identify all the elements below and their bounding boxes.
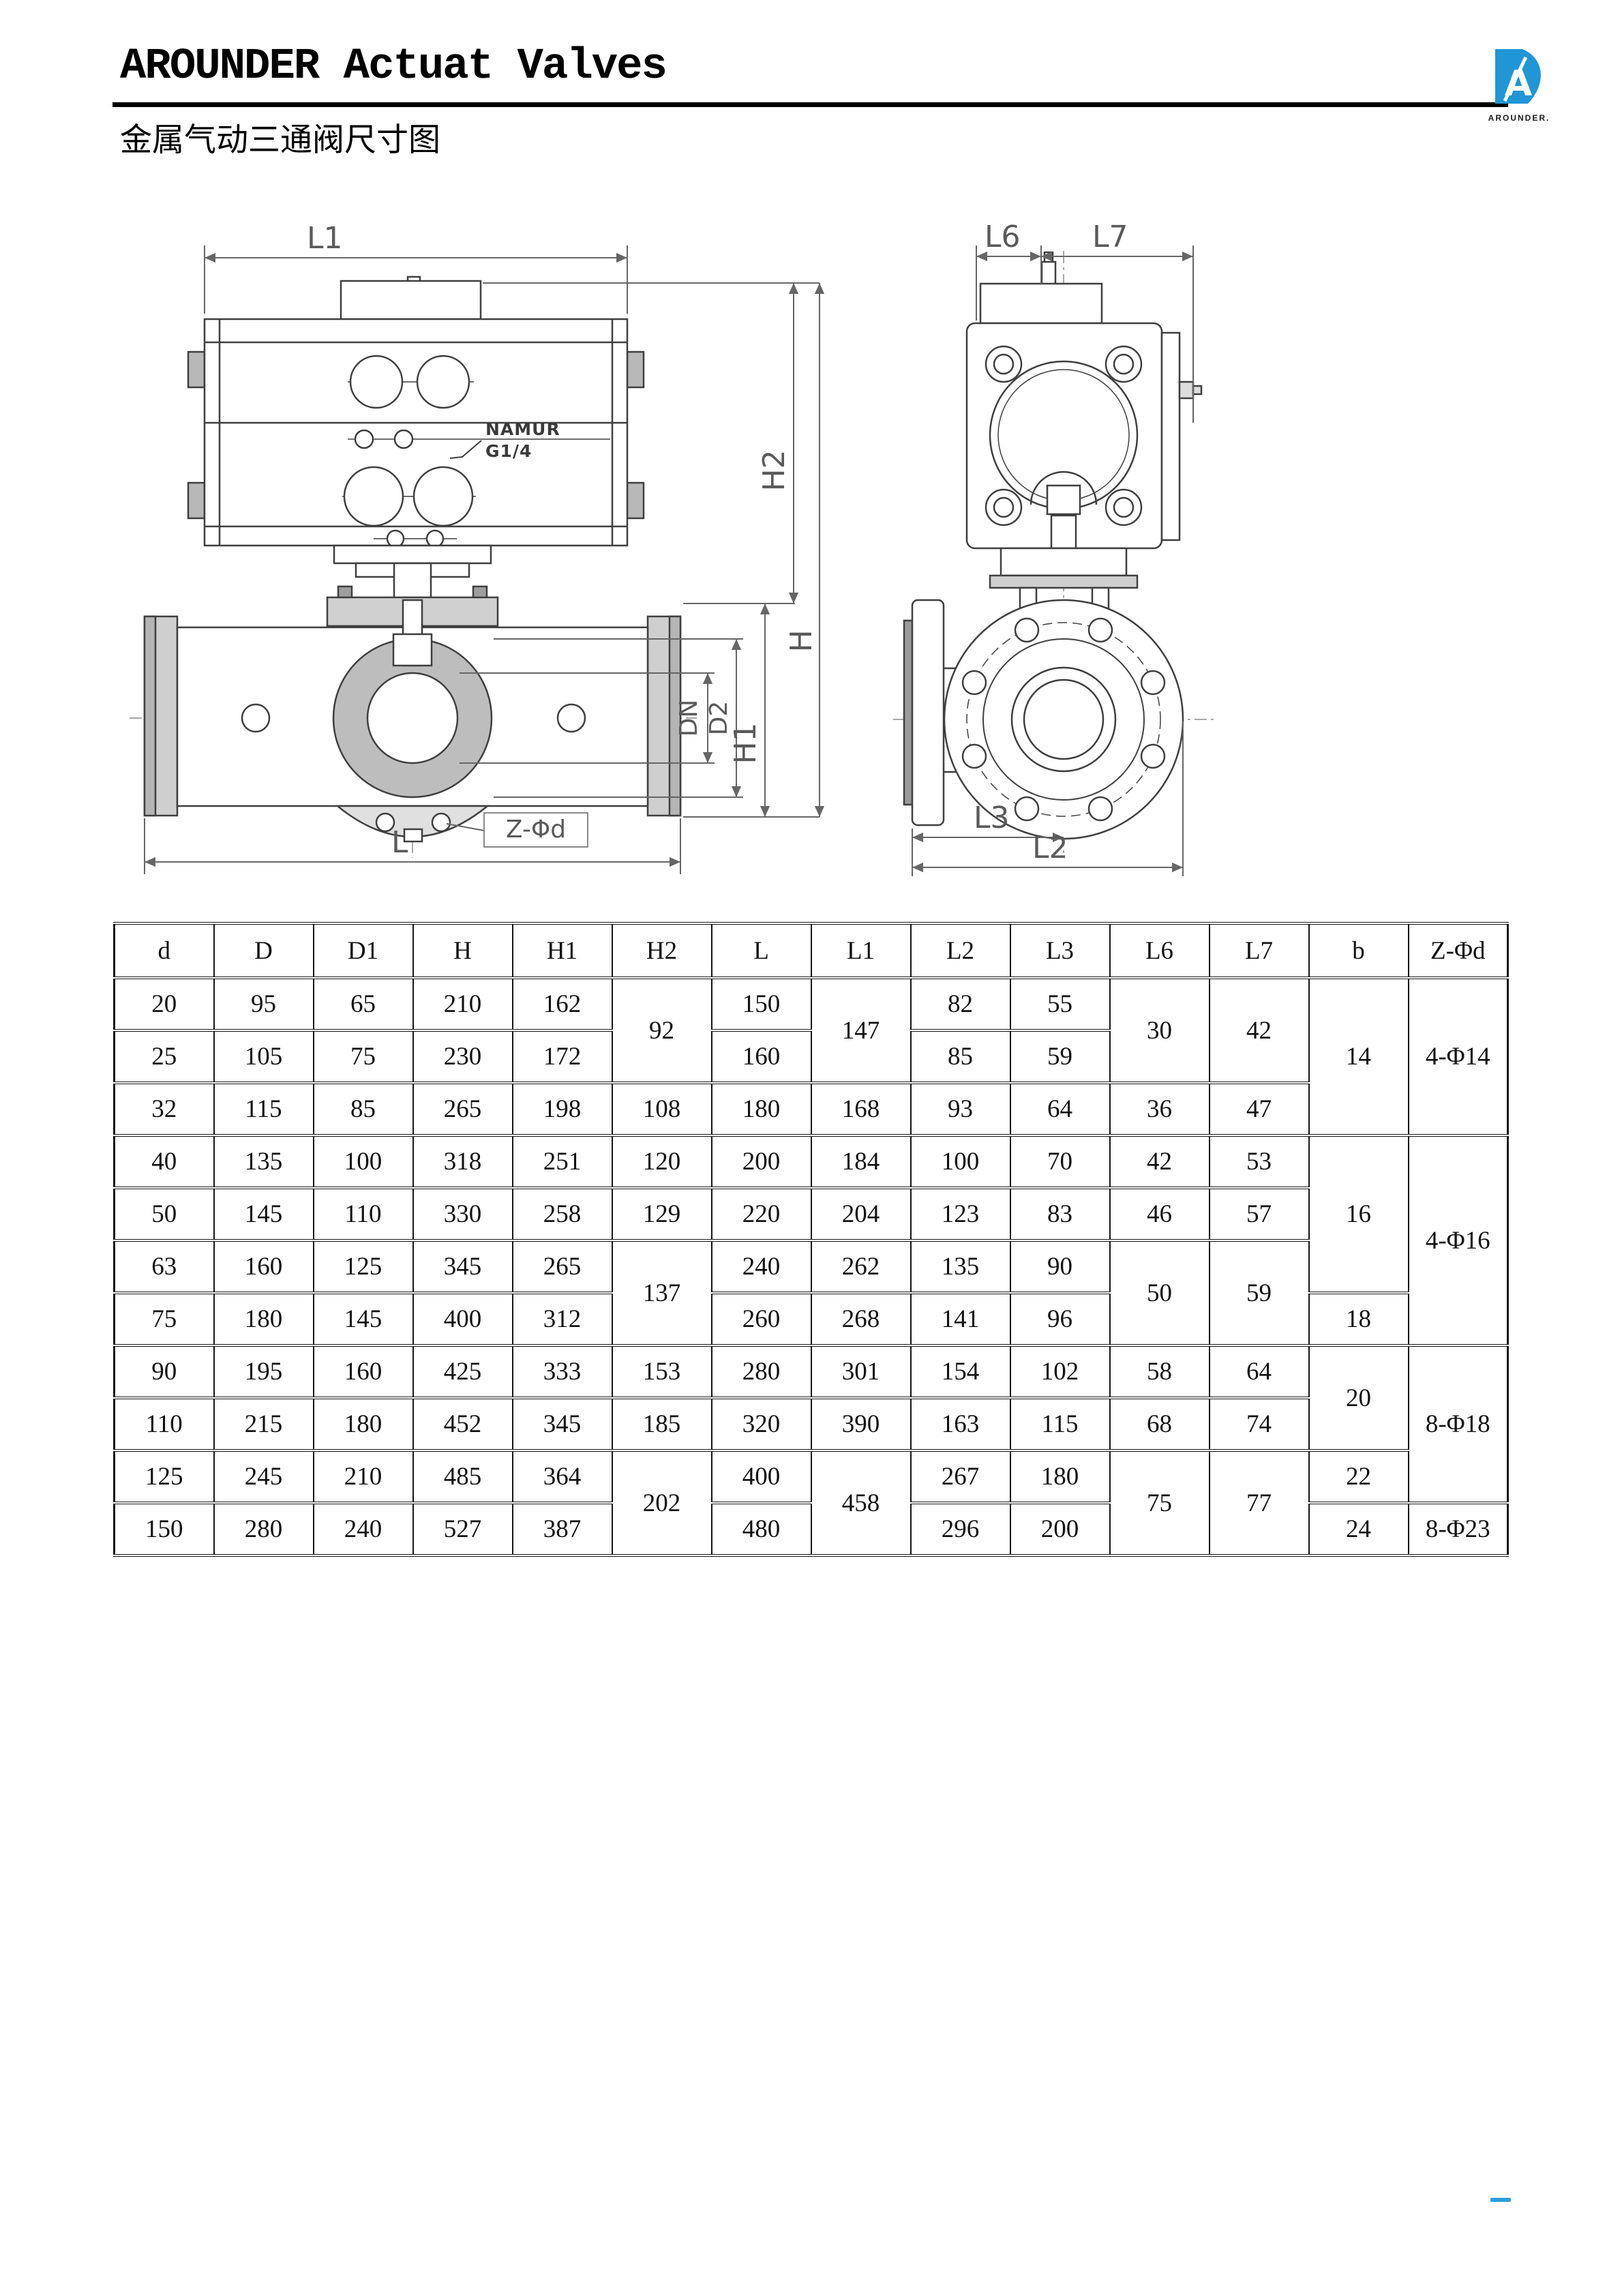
table-cell: 262 — [811, 1240, 911, 1293]
front-view-drawing: NAMUR G1/4 — [102, 218, 825, 890]
table-cell: 318 — [413, 1135, 513, 1188]
table-cell: 320 — [712, 1398, 811, 1450]
table-cell: 14 — [1309, 978, 1409, 1135]
table-cell: 204 — [811, 1188, 911, 1240]
table-cell: 387 — [513, 1503, 612, 1555]
table-cell: 145 — [214, 1188, 314, 1240]
table-cell: 120 — [612, 1135, 712, 1188]
table-row: 50145110330258129220204123834657 — [115, 1188, 1508, 1240]
table-cell: 115 — [1010, 1398, 1110, 1450]
table-cell: 75 — [115, 1293, 214, 1345]
table-cell: 47 — [1210, 1083, 1309, 1135]
table-cell: 74 — [1210, 1398, 1309, 1450]
title-rule — [112, 102, 1508, 107]
table-row: 321158526519810818016893643647 — [115, 1083, 1508, 1135]
namur-label-line1: NAMUR — [485, 419, 560, 439]
table-cell: 105 — [214, 1030, 314, 1083]
table-cell: 180 — [314, 1398, 413, 1450]
table-cell: 22 — [1309, 1450, 1409, 1503]
page-subtitle: 金属气动三通阀尺寸图 — [120, 113, 440, 160]
table-cell: 83 — [1010, 1188, 1110, 1240]
table-cell: 245 — [214, 1450, 314, 1503]
logo-brand-text: AROUNDER. — [1484, 113, 1555, 123]
table-cell: 25 — [115, 1030, 214, 1083]
table-cell: 92 — [612, 978, 712, 1083]
column-header: L — [712, 923, 811, 978]
table-cell: 75 — [1110, 1450, 1210, 1555]
table-cell: 210 — [314, 1450, 413, 1503]
valve-side — [904, 600, 1183, 839]
table-cell: 135 — [214, 1135, 314, 1188]
table-cell: 150 — [115, 1503, 214, 1555]
table-cell: 153 — [612, 1345, 712, 1398]
table-cell: 30 — [1110, 978, 1210, 1083]
table-cell: 100 — [314, 1135, 413, 1188]
table-cell: 137 — [612, 1240, 712, 1345]
actuator-front — [188, 277, 644, 547]
column-header: L1 — [811, 923, 911, 978]
table-cell: 18 — [1309, 1293, 1409, 1345]
table-cell: 258 — [513, 1188, 612, 1240]
table-row: 63160125345265137240262135905059 — [115, 1240, 1508, 1293]
table-cell: 180 — [712, 1083, 811, 1135]
table-cell: 452 — [413, 1398, 513, 1450]
table-cell: 68 — [1110, 1398, 1210, 1450]
table-cell: 59 — [1010, 1030, 1110, 1083]
table-cell: 77 — [1210, 1450, 1309, 1555]
table-cell: 240 — [314, 1503, 413, 1555]
logo-monogram: A — [1505, 63, 1532, 104]
table-cell: 96 — [1010, 1293, 1110, 1345]
table-cell: 280 — [712, 1345, 811, 1398]
table-row: 40135100318251120200184100704253164-Φ16 — [115, 1135, 1508, 1188]
table-cell: 20 — [115, 978, 214, 1030]
table-cell: 260 — [712, 1293, 811, 1345]
column-header: L2 — [911, 923, 1010, 978]
table-row: 2095652101629215014782553042144-Φ14 — [115, 978, 1508, 1030]
table-cell: 102 — [1010, 1345, 1110, 1398]
table-cell: 195 — [214, 1345, 314, 1398]
table-cell: 85 — [314, 1083, 413, 1135]
table-cell: 95 — [214, 978, 314, 1030]
table-cell: 400 — [413, 1293, 513, 1345]
table-cell: 180 — [1010, 1450, 1110, 1503]
table-cell: 301 — [811, 1345, 911, 1398]
table-cell: 40 — [115, 1135, 214, 1188]
table-cell: 20 — [1309, 1345, 1409, 1450]
table-cell: 527 — [413, 1503, 513, 1555]
column-header: b — [1309, 923, 1409, 978]
namur-label-line2: G1/4 — [485, 441, 532, 461]
table-cell: 110 — [115, 1398, 214, 1450]
table-cell: 163 — [911, 1398, 1010, 1450]
table-cell: 180 — [214, 1293, 314, 1345]
table-cell: 46 — [1110, 1188, 1210, 1240]
table-cell: 115 — [214, 1083, 314, 1135]
table-cell: 57 — [1210, 1188, 1309, 1240]
table-cell: 268 — [811, 1293, 911, 1345]
table-cell: 154 — [911, 1345, 1010, 1398]
table-cell: 145 — [314, 1293, 413, 1345]
table-cell: 4-Φ16 — [1409, 1135, 1508, 1345]
table-cell: 70 — [1010, 1135, 1110, 1188]
dim-label-z-phi-d: Z-Φd — [506, 816, 566, 844]
table-cell: 125 — [314, 1240, 413, 1293]
table-cell: 93 — [911, 1083, 1010, 1135]
dim-label-l: L — [391, 825, 408, 860]
table-cell: 185 — [612, 1398, 712, 1450]
table-cell: 82 — [911, 978, 1010, 1030]
dim-label-h: H — [784, 629, 819, 652]
page-title: AROUNDER Actuat Valves — [120, 42, 666, 91]
ball-bore — [367, 673, 457, 763]
column-header: H2 — [612, 923, 712, 978]
table-cell: 75 — [314, 1030, 413, 1083]
table-cell: 63 — [115, 1240, 214, 1293]
table-cell: 251 — [513, 1135, 612, 1188]
table-cell: 125 — [115, 1450, 214, 1503]
table-cell: 458 — [811, 1450, 911, 1555]
column-header: L3 — [1010, 923, 1110, 978]
table-cell: 160 — [314, 1345, 413, 1398]
table-cell: 32 — [115, 1083, 214, 1135]
side-view-drawing: L6 L7 L3 L2 — [873, 218, 1309, 890]
table-cell: 108 — [612, 1083, 712, 1135]
dimension-table: dDD1HH1H2LL1L2L3L6L7bZ-Φd 20956521016292… — [113, 922, 1509, 1557]
table-cell: 200 — [1010, 1503, 1110, 1555]
table-cell: 110 — [314, 1188, 413, 1240]
table-cell: 390 — [811, 1398, 911, 1450]
table-cell: 55 — [1010, 978, 1110, 1030]
table-cell: 90 — [1010, 1240, 1110, 1293]
table-cell: 53 — [1210, 1135, 1309, 1188]
table-cell: 4-Φ14 — [1409, 978, 1508, 1135]
table-cell: 296 — [911, 1503, 1010, 1555]
column-header: D — [214, 923, 314, 978]
column-header: Z-Φd — [1409, 923, 1508, 978]
table-cell: 333 — [513, 1345, 612, 1398]
table-cell: 42 — [1110, 1135, 1210, 1188]
table-cell: 210 — [413, 978, 513, 1030]
table-cell: 240 — [712, 1240, 811, 1293]
table-cell: 64 — [1210, 1345, 1309, 1398]
column-header: D1 — [314, 923, 413, 978]
page-corner-mark — [1490, 2198, 1511, 2202]
datasheet-page: { "header": { "title": "AROUNDER Actuat … — [0, 0, 1622, 2296]
table-cell: 85 — [911, 1030, 1010, 1083]
table-cell: 200 — [712, 1135, 811, 1188]
logo-mark-icon: A — [1488, 45, 1550, 109]
table-cell: 90 — [115, 1345, 214, 1398]
table-cell: 425 — [413, 1345, 513, 1398]
table-cell: 8-Φ23 — [1409, 1503, 1508, 1555]
table-cell: 172 — [513, 1030, 612, 1083]
actuator-side — [967, 252, 1201, 608]
table-cell: 100 — [911, 1135, 1010, 1188]
table-cell: 150 — [712, 978, 811, 1030]
table-cell: 312 — [513, 1293, 612, 1345]
table-cell: 230 — [413, 1030, 513, 1083]
table-cell: 58 — [1110, 1345, 1210, 1398]
table-cell: 330 — [413, 1188, 513, 1240]
table-cell: 16 — [1309, 1135, 1409, 1293]
dim-label-l7: L7 — [1092, 220, 1128, 254]
table-cell: 160 — [712, 1030, 811, 1083]
dim-label-h1: H1 — [728, 722, 763, 764]
table-cell: 267 — [911, 1450, 1010, 1503]
table-cell: 135 — [911, 1240, 1010, 1293]
table-cell: 280 — [214, 1503, 314, 1555]
table-cell: 345 — [413, 1240, 513, 1293]
table-cell: 485 — [413, 1450, 513, 1503]
table-cell: 36 — [1110, 1083, 1210, 1135]
table-cell: 129 — [612, 1188, 712, 1240]
table-cell: 265 — [513, 1240, 612, 1293]
table-cell: 215 — [214, 1398, 314, 1450]
table-cell: 50 — [1110, 1240, 1210, 1345]
table-cell: 345 — [513, 1398, 612, 1450]
table-cell: 168 — [811, 1083, 911, 1135]
table-cell: 123 — [911, 1188, 1010, 1240]
dim-label-l1: L1 — [307, 221, 343, 256]
table-cell: 147 — [811, 978, 911, 1083]
dim-label-h2: H2 — [757, 449, 792, 491]
column-header: H1 — [513, 923, 612, 978]
table-cell: 184 — [811, 1135, 911, 1188]
table-cell: 160 — [214, 1240, 314, 1293]
table-cell: 162 — [513, 978, 612, 1030]
company-logo: A AROUNDER. — [1484, 45, 1555, 123]
table-cell: 8-Φ18 — [1409, 1345, 1508, 1503]
table-cell: 64 — [1010, 1083, 1110, 1135]
dim-label-l2: L2 — [1032, 831, 1068, 865]
dim-label-l3: L3 — [974, 801, 1010, 835]
table-cell: 202 — [612, 1450, 712, 1555]
table-row: 125245210485364202400458267180757722 — [115, 1450, 1508, 1503]
table-cell: 42 — [1210, 978, 1309, 1083]
column-header: H — [413, 923, 513, 978]
table-cell: 198 — [513, 1083, 612, 1135]
table-cell: 141 — [911, 1293, 1010, 1345]
dimension-table-header: dDD1HH1H2LL1L2L3L6L7bZ-Φd — [115, 923, 1508, 978]
table-cell: 24 — [1309, 1503, 1409, 1555]
column-header: d — [115, 923, 214, 978]
column-header: L7 — [1210, 923, 1309, 978]
table-cell: 59 — [1210, 1240, 1309, 1345]
table-cell: 50 — [115, 1188, 214, 1240]
dim-label-dn: DN — [675, 700, 703, 737]
table-row: 1102151804523451853203901631156874 — [115, 1398, 1508, 1450]
table-row: 901951604253331532803011541025864208-Φ18 — [115, 1345, 1508, 1398]
table-cell: 400 — [712, 1450, 811, 1503]
table-cell: 364 — [513, 1450, 612, 1503]
table-cell: 220 — [712, 1188, 811, 1240]
column-header: L6 — [1110, 923, 1210, 978]
table-cell: 265 — [413, 1083, 513, 1135]
table-cell: 65 — [314, 978, 413, 1030]
dim-label-l6: L6 — [985, 220, 1021, 254]
table-cell: 480 — [712, 1503, 811, 1555]
